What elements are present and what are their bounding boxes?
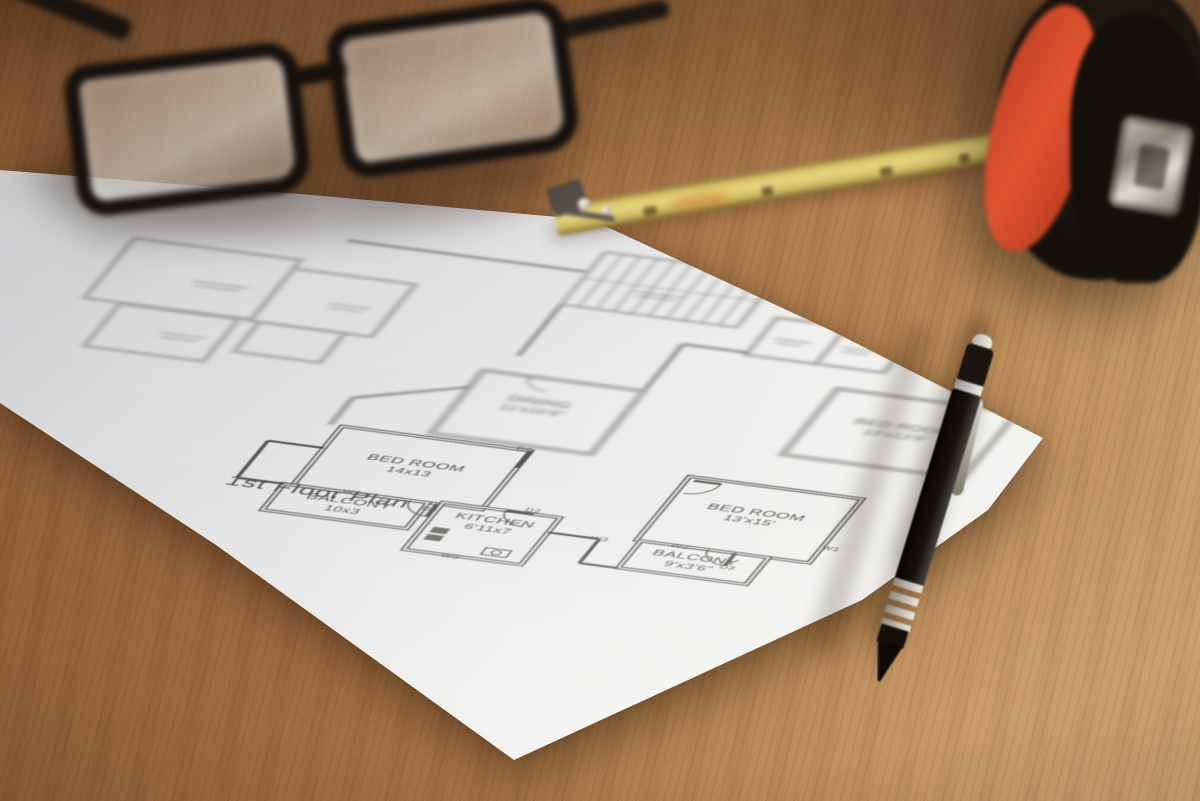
- glasses-left-lens: [62, 39, 314, 219]
- pen-grip-ring: [888, 591, 919, 607]
- kitchen-sink: [481, 548, 512, 558]
- wall-segment: [579, 539, 599, 563]
- wall-segment: [683, 344, 748, 352]
- wall-opening-marker: W3: [588, 535, 610, 543]
- wall-opening-marker: W2: [669, 542, 691, 550]
- eyeglasses: [0, 0, 665, 255]
- wall-segment: [268, 441, 324, 448]
- blade-marking: [959, 153, 970, 164]
- plan-near-region: BED ROOM14x13BALCONY10x3KITCHEN6'11x7BED…: [190, 414, 887, 604]
- wall-segment: [518, 304, 561, 356]
- wall-segment: [194, 281, 248, 288]
- wall-opening-marker: W3: [439, 552, 461, 560]
- wall-hatch: [250, 268, 415, 336]
- wall-outline: [250, 268, 415, 336]
- glasses-right-lens: [323, 0, 582, 181]
- stove-burner: [429, 527, 450, 535]
- glasses-left-temple-arm: [0, 0, 134, 42]
- wall-segment: [330, 398, 352, 425]
- wall-segment: [775, 338, 811, 343]
- wall-segment: [645, 344, 682, 389]
- wall-hatch: [235, 322, 345, 363]
- tape-measure-body: [975, 0, 1200, 300]
- wall-segment: [517, 451, 531, 468]
- wall-segment: [161, 337, 197, 342]
- wall-segment: [775, 343, 802, 347]
- sink-basin: [490, 550, 503, 555]
- scene-floor-plan-photo: BED ROOM13'x13'9"DINING11'x10'6" BED ROO…: [0, 0, 1200, 801]
- belt-clip-slot: [1133, 144, 1170, 191]
- plan-title: 1st Floor Plan: [221, 473, 414, 511]
- wall-segment: [237, 441, 268, 478]
- stove-burner: [423, 534, 444, 542]
- wall-outline: [235, 322, 345, 363]
- glasses-right-temple-arm: [559, 0, 670, 39]
- blade-marking: [880, 166, 893, 177]
- wall-cavity: [235, 322, 345, 363]
- blade-marking: [761, 186, 773, 197]
- wall-cavity: [250, 268, 415, 336]
- wall-segment: [330, 308, 362, 312]
- wall-opening-marker: W1: [820, 545, 842, 553]
- wall-segment: [842, 352, 867, 355]
- pen-grip-ring: [884, 604, 915, 620]
- wall-segment: [579, 563, 618, 568]
